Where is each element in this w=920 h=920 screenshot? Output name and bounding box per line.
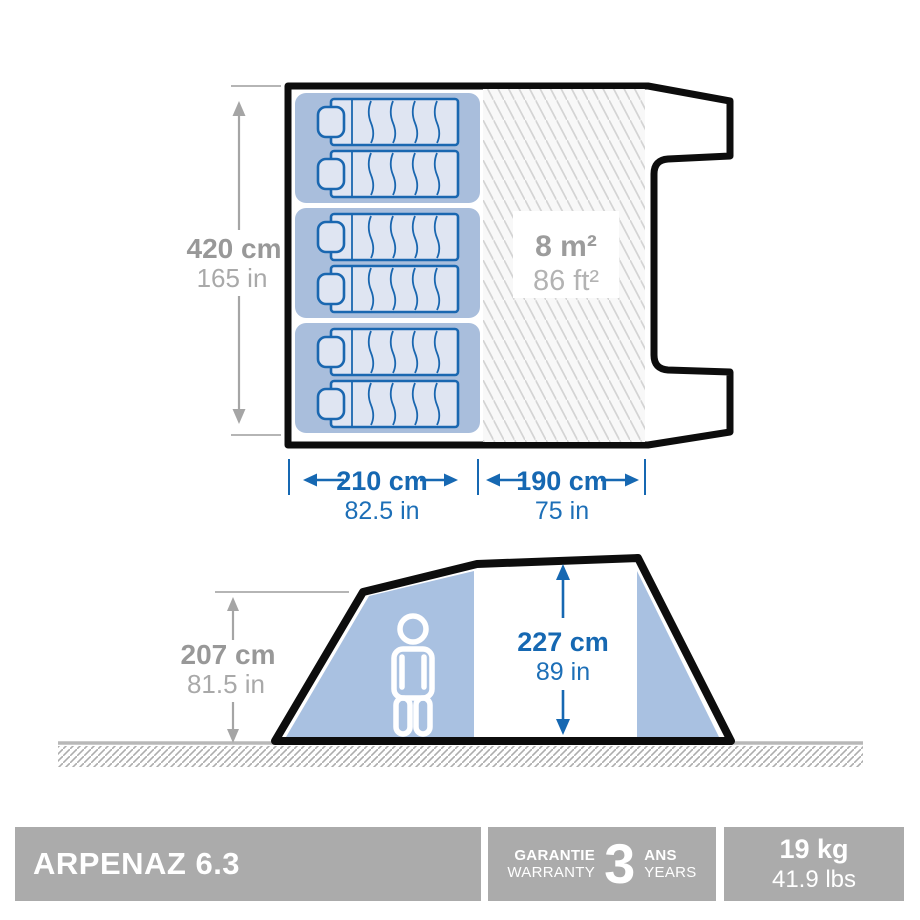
bedroom-width-cm-label: 210 cm: [336, 466, 428, 496]
peak-height-in-label: 81.5 in: [187, 669, 265, 699]
product-name: ARPENAZ 6.3: [33, 846, 240, 882]
weight-badge: 19 kg 41.9 lbs: [724, 827, 904, 901]
tent-floor-plan: 8 m² 86 ft² 420 cm 165 in: [187, 86, 730, 525]
living-area-m2: 8 m²: [535, 230, 597, 263]
living-width-in-label: 75 in: [535, 497, 589, 525]
weight-imperial: 41.9 lbs: [772, 866, 856, 895]
depth-in-label: 165 in: [197, 263, 268, 293]
warranty-unit-en: YEARS: [644, 864, 696, 881]
bedroom-width-dimension: 210 cm 82.5 in: [289, 459, 478, 525]
warranty-label-en: WARRANTY: [507, 864, 595, 881]
warranty-years: 3: [604, 836, 635, 892]
warranty-badge: GARANTIE WARRANTY 3 ANS YEARS: [488, 827, 716, 901]
depth-cm-label: 420 cm: [187, 233, 282, 264]
weight-metric: 19 kg: [779, 833, 848, 865]
mattress-icon: [318, 266, 458, 312]
living-width-dimension: 190 cm 75 in: [486, 459, 645, 525]
arrow-left-icon: [303, 474, 317, 487]
peak-height-cm-label: 207 cm: [181, 639, 276, 670]
mattress-icon: [318, 99, 458, 145]
living-width-cm-label: 190 cm: [516, 466, 608, 496]
product-name-bar: ARPENAZ 6.3: [15, 827, 481, 901]
interior-height-cm-label: 227 cm: [517, 627, 609, 657]
ground: [58, 743, 863, 767]
arrow-down-icon: [233, 409, 246, 424]
mattress-icon: [318, 151, 458, 197]
depth-dimension: 420 cm 165 in: [187, 86, 282, 435]
warranty-label-fr: GARANTIE: [507, 847, 595, 864]
tent-spec-sheet: 8 m² 86 ft² 420 cm 165 in: [0, 0, 920, 920]
warranty-unit-fr: ANS: [644, 847, 696, 864]
mattress-icon: [318, 329, 458, 375]
interior-height-in-label: 89 in: [536, 658, 590, 686]
mattress-icon: [318, 381, 458, 427]
arrow-up-icon: [233, 101, 246, 116]
tent-dimension-diagram: 8 m² 86 ft² 420 cm 165 in: [0, 0, 920, 810]
arrow-left-icon: [486, 474, 500, 487]
living-area-label: 8 m² 86 ft²: [513, 211, 619, 298]
arrow-up-icon: [227, 597, 239, 611]
arrow-right-icon: [625, 474, 639, 487]
side-panel-left: [286, 571, 474, 737]
mattress-icon: [318, 214, 458, 260]
arrow-down-icon: [227, 729, 239, 743]
arrow-right-icon: [444, 474, 458, 487]
bedroom-width-in-label: 82.5 in: [344, 497, 419, 525]
tent-side-profile: 207 cm 81.5 in 227 cm 89 in: [58, 558, 863, 767]
living-area-ft2: 86 ft²: [533, 265, 599, 297]
